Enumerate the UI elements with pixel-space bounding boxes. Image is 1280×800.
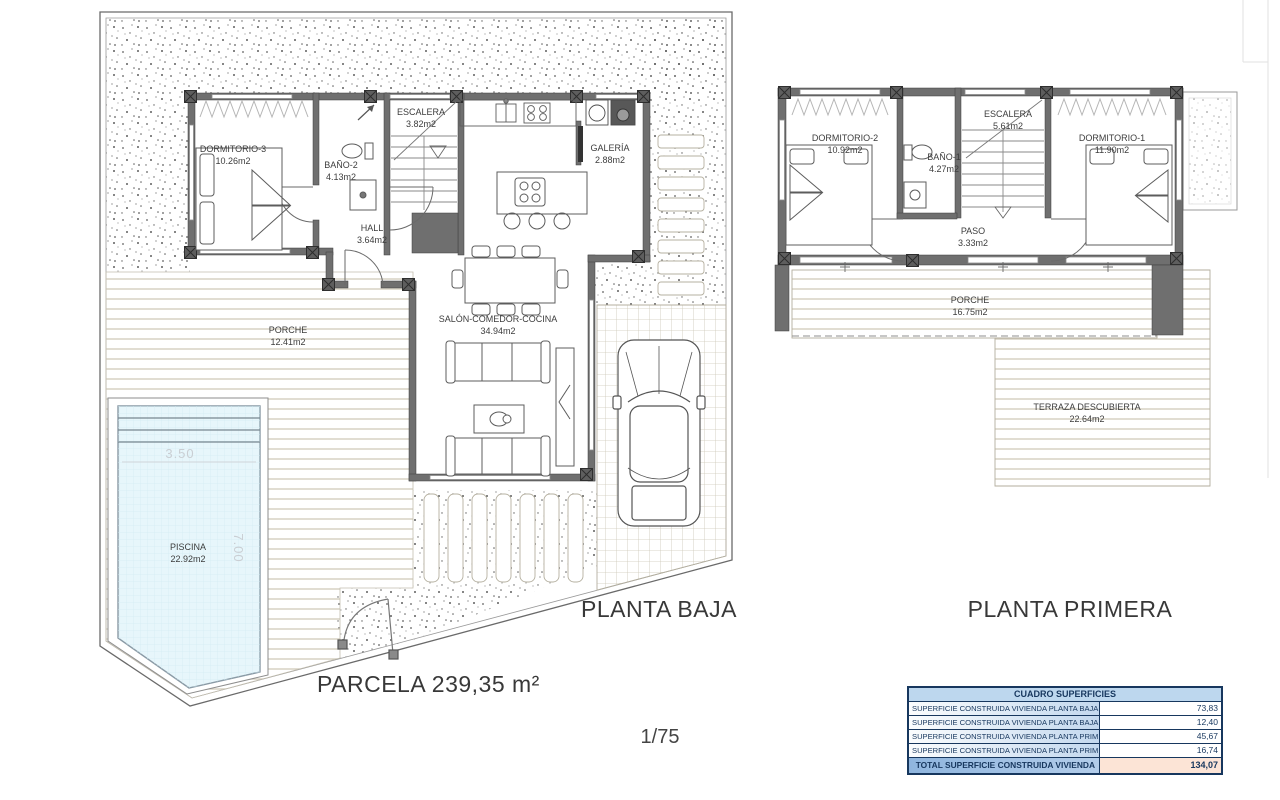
label-escalera-baja: ESCALERA — [397, 107, 445, 117]
balcony — [1183, 92, 1237, 210]
table-row: SUPERFICIE CONSTRUIDA VIVIENDA PLANTA BA… — [909, 716, 1221, 730]
floorplan-sheet: 3.50 7.00 — [0, 0, 1280, 800]
label-escalera-primera-area: 5.61m2 — [993, 121, 1023, 131]
bed-dormitorio1 — [1086, 145, 1172, 245]
label-bano1-area: 4.27m2 — [929, 164, 959, 174]
table-row: SUPERFICIE CONSTRUIDA VIVIENDA PLANTA PR… — [909, 744, 1221, 758]
table-total-row: TOTAL SUPERFICIE CONSTRUIDA VIVIENDA 134… — [909, 758, 1221, 773]
table-row: SUPERFICIE CONSTRUIDA VIVIENDA PLANTA BA… — [909, 702, 1221, 716]
floorplan-drawing: 3.50 7.00 — [0, 0, 1280, 800]
pool-dim-length: 7.00 — [231, 533, 246, 562]
label-hall: HALL — [361, 223, 384, 233]
label-porche-baja-area: 12.41m2 — [270, 337, 305, 347]
terrace-decks — [792, 270, 1210, 486]
table-row-label: SUPERFICIE CONSTRUIDA VIVIENDA PLANTA BA… — [909, 702, 1100, 715]
car — [613, 340, 705, 526]
sheet-border-lines — [1243, 0, 1268, 478]
label-dormitorio2-area: 10.92m2 — [827, 145, 862, 155]
label-escalera-baja-area: 3.82m2 — [406, 119, 436, 129]
table-row-value: 45,67 — [1100, 730, 1221, 743]
label-hall-area: 3.64m2 — [357, 235, 387, 245]
label-dormitorio3-area: 10.26m2 — [215, 156, 250, 166]
label-terraza: TERRAZA DESCUBIERTA — [1033, 402, 1140, 412]
table-row-label: SUPERFICIE CONSTRUIDA VIVIENDA PLANTA BA… — [909, 716, 1100, 729]
title-planta-baja: PLANTA BAJA — [559, 596, 759, 623]
title-planta-primera: PLANTA PRIMERA — [960, 596, 1180, 623]
label-galeria: GALERÍA — [590, 143, 629, 153]
closet-dormitorio2 — [792, 99, 888, 115]
label-dormitorio3: DORMITORIO-3 — [200, 144, 266, 154]
table-total-value: 134,07 — [1100, 758, 1221, 773]
table-total-label: TOTAL SUPERFICIE CONSTRUIDA VIVIENDA — [909, 758, 1100, 773]
surface-table: CUADRO SUPERFICIES SUPERFICIE CONSTRUIDA… — [907, 686, 1223, 775]
closet-dormitorio1 — [1058, 99, 1166, 115]
table-row-value: 12,40 — [1100, 716, 1221, 729]
parking-area — [597, 305, 726, 590]
label-bano2: BAÑO-2 — [324, 160, 358, 170]
table-row-value: 73,83 — [1100, 702, 1221, 715]
label-dormitorio1: DORMITORIO-1 — [1079, 133, 1145, 143]
label-porche-primera: PORCHE — [951, 295, 990, 305]
table-row-label: SUPERFICIE CONSTRUIDA VIVIENDA PLANTA PR… — [909, 744, 1100, 757]
parcel-area-label: PARCELA 239,35 m² — [317, 671, 517, 698]
plan-primera-graphics: DORMITORIO-2 10.92m2 BAÑO-1 4.27m2 ESCAL… — [775, 87, 1237, 487]
scale-label: 1/75 — [630, 726, 690, 749]
label-escalera-primera: ESCALERA — [984, 109, 1032, 119]
bed-dormitorio2 — [786, 145, 872, 245]
label-galeria-area: 2.88m2 — [595, 155, 625, 165]
label-dormitorio2: DORMITORIO-2 — [812, 133, 878, 143]
table-row: SUPERFICIE CONSTRUIDA VIVIENDA PLANTA PR… — [909, 730, 1221, 744]
pool-dim-width: 3.50 — [165, 446, 194, 461]
label-salon-area: 34.94m2 — [480, 326, 515, 336]
surface-table-header: CUADRO SUPERFICIES — [909, 688, 1221, 702]
label-piscina-area: 22.92m2 — [170, 554, 205, 564]
label-porche-primera-area: 16.75m2 — [952, 307, 987, 317]
label-bano1: BAÑO-1 — [927, 152, 961, 162]
label-dormitorio1-area: 11.90m2 — [1095, 145, 1129, 155]
label-paso: PASO — [961, 226, 985, 236]
label-bano2-area: 4.13m2 — [326, 172, 356, 182]
label-porche-baja: PORCHE — [269, 325, 308, 335]
label-salon: SALÓN-COMEDOR-COCINA — [439, 314, 558, 324]
label-paso-area: 3.33m2 — [958, 238, 988, 248]
table-row-label: SUPERFICIE CONSTRUIDA VIVIENDA PLANTA PR… — [909, 730, 1100, 743]
label-terraza-area: 22.64m2 — [1069, 414, 1104, 424]
table-row-value: 16,74 — [1100, 744, 1221, 757]
label-piscina: PISCINA — [170, 542, 206, 552]
